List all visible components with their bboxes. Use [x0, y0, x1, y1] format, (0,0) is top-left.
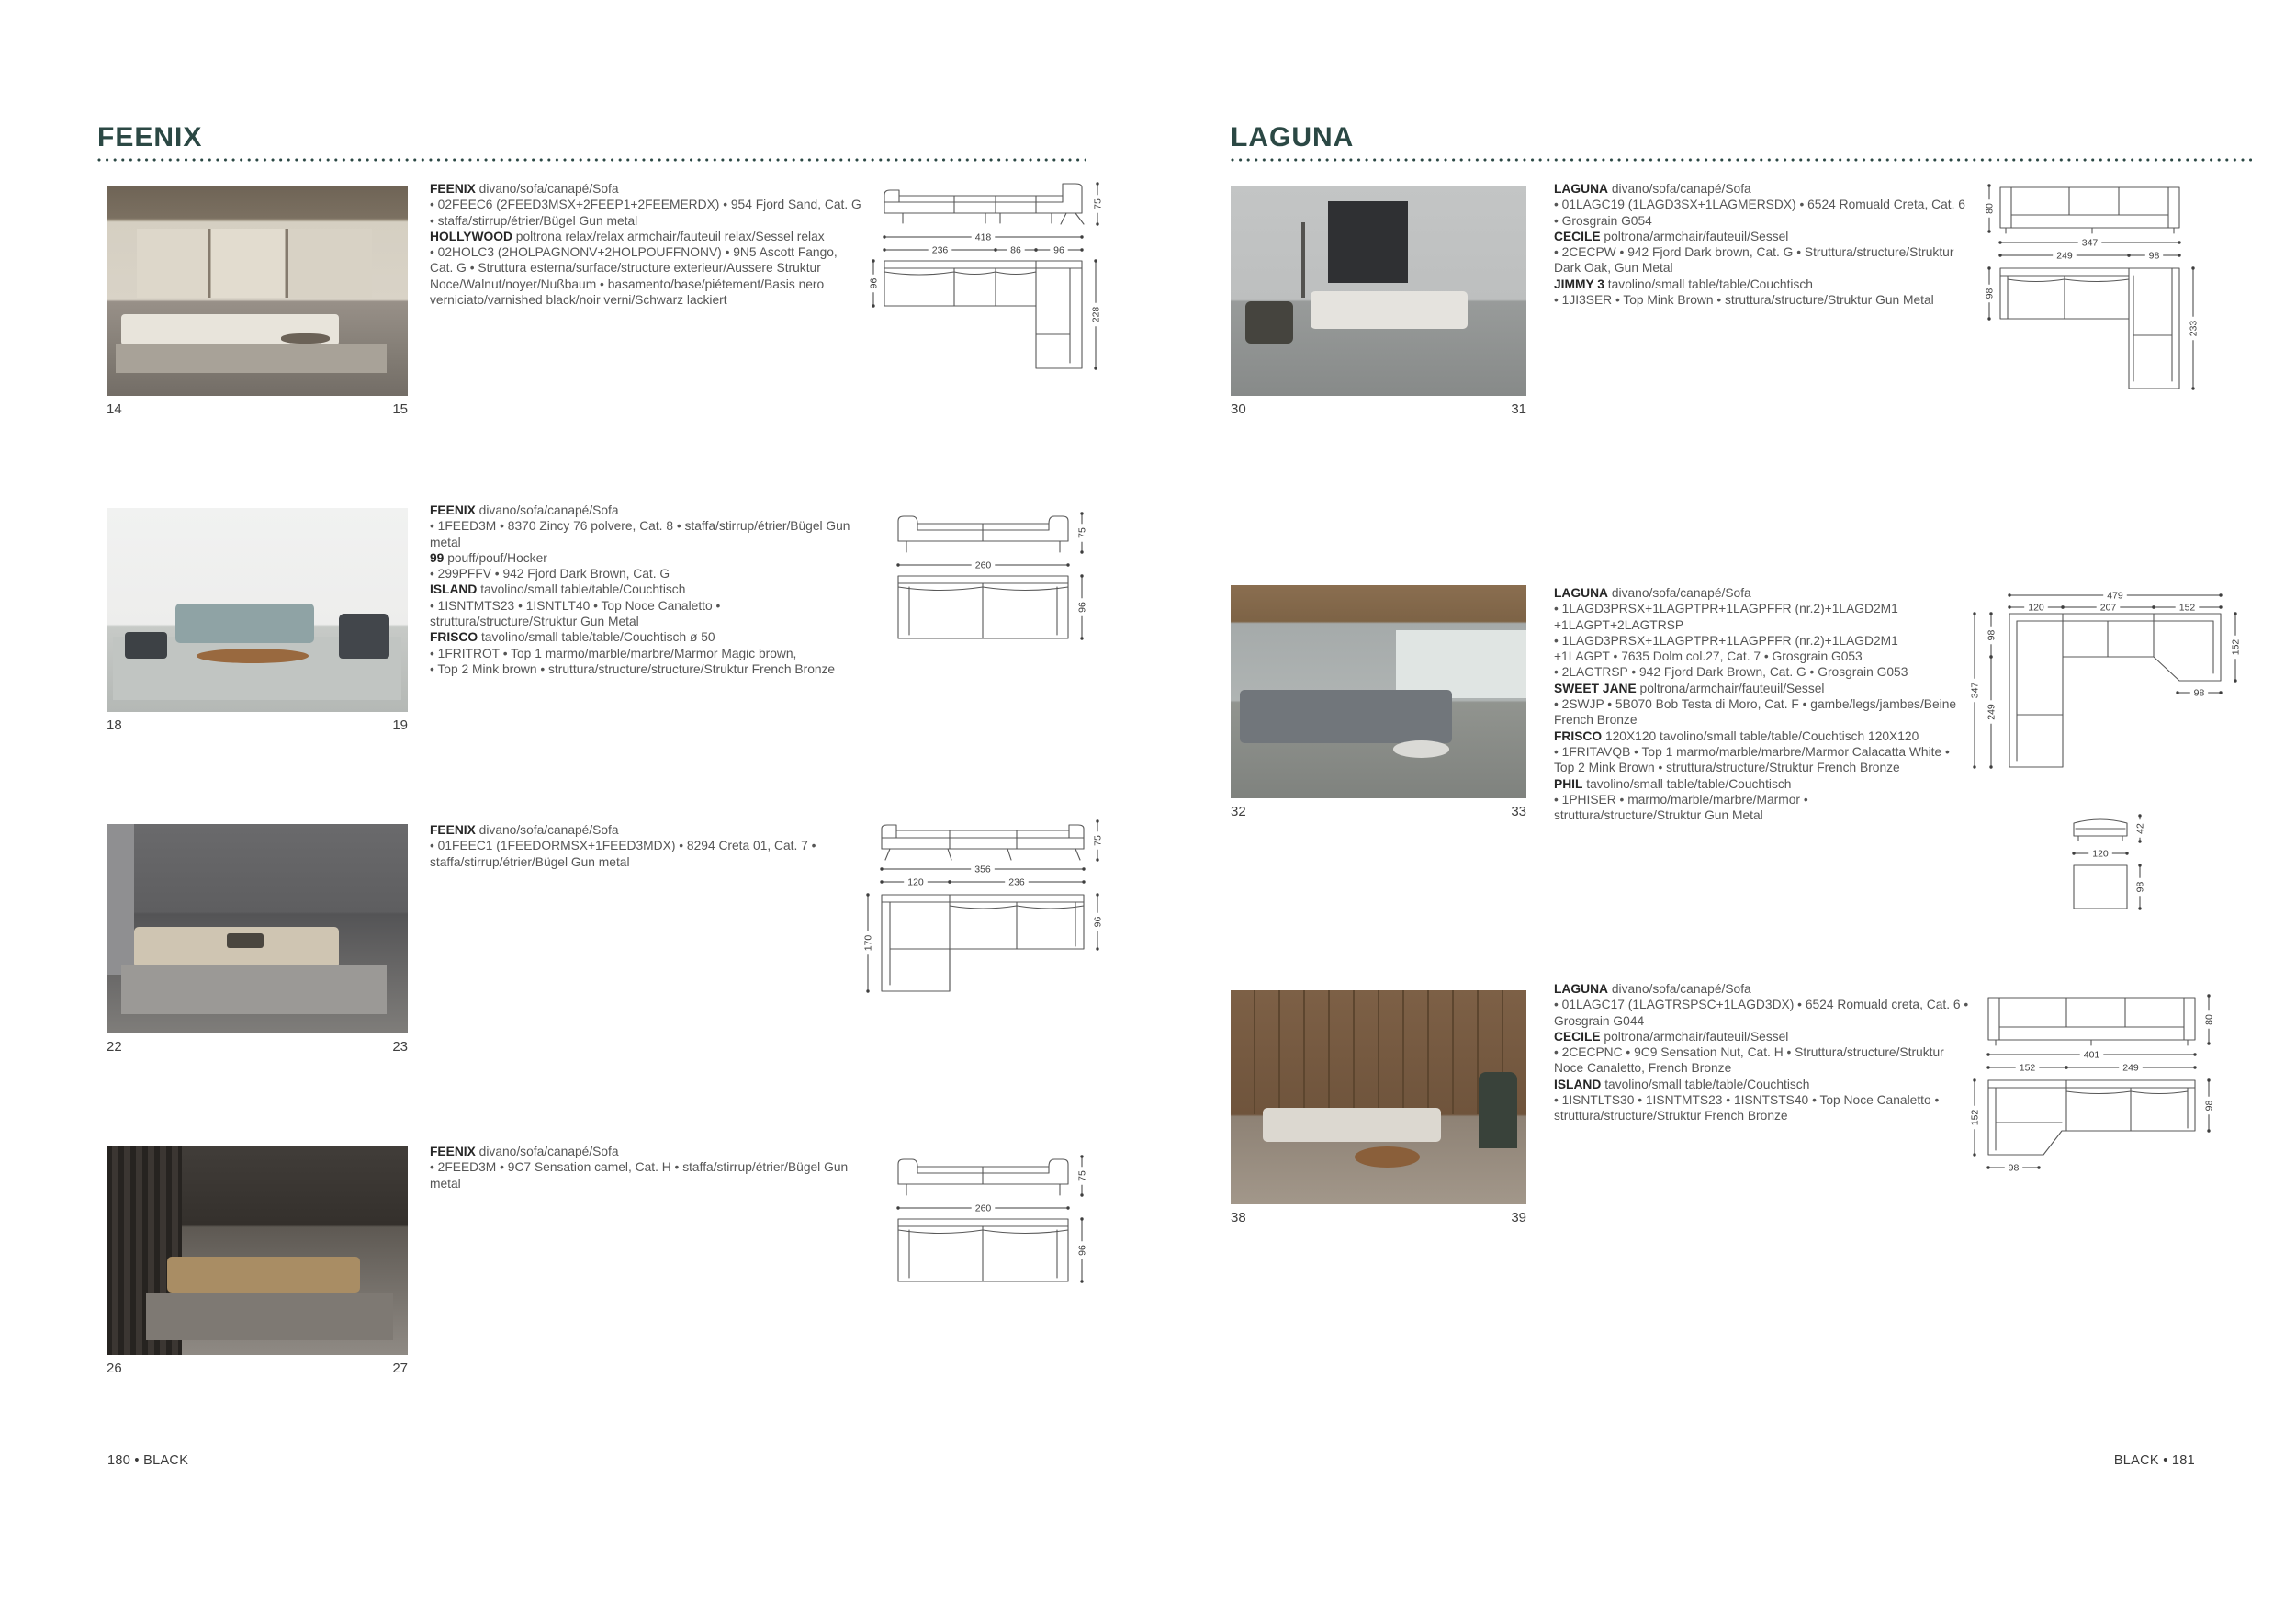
- product-name: FEENIX: [430, 1145, 476, 1158]
- photo-shape: [281, 333, 329, 344]
- product-spec-text: • 1FRITAVQB • Top 1 marmo/marble/marbre/…: [1554, 745, 1953, 774]
- photo-shape: [1328, 201, 1408, 283]
- dimension-segment: 249: [2065, 1062, 2196, 1073]
- dimension-total-width: 401: [1986, 1049, 2196, 1060]
- svg-text:75: 75: [1077, 527, 1088, 538]
- product-spec-text: • 1LAGD3PRSX+1LAGPTPR+1LAGPFFR (nr.2)+1L…: [1554, 602, 1898, 631]
- svg-text:228: 228: [1091, 307, 1102, 323]
- dimension-pouf-width: 120: [2072, 848, 2128, 859]
- svg-text:98: 98: [2149, 250, 2160, 261]
- dimension-segment: 120: [2008, 602, 2064, 613]
- product-spec-text: • 02HOLC3 (2HOLPAGNONV+2HOLPOUFFNONV) • …: [430, 245, 841, 307]
- svg-text:42: 42: [2135, 823, 2146, 834]
- svg-text:96: 96: [1077, 1245, 1088, 1256]
- photo-shape: [1311, 291, 1468, 329]
- product-name: HOLLYWOOD: [430, 230, 512, 243]
- svg-text:120: 120: [2028, 602, 2044, 613]
- product-spec-text: 120X120 tavolino/small table/table/Couch…: [1602, 729, 1919, 743]
- svg-text:236: 236: [1008, 876, 1025, 887]
- photo-caption: 1819: [107, 717, 408, 733]
- product-spec-text: • 299PFFV • 942 Fjord Dark Brown, Cat. G: [430, 567, 670, 581]
- photo-number: 30: [1231, 401, 1246, 417]
- svg-text:401: 401: [2084, 1049, 2100, 1060]
- svg-text:249: 249: [1986, 704, 1998, 720]
- product-spec-text: divano/sofa/canapé/Sofa: [476, 823, 619, 837]
- photo-caption: 2627: [107, 1360, 408, 1376]
- product-spec-text: • 1FRITROT • Top 1 marmo/marble/marbre/M…: [430, 647, 835, 676]
- photo-shape: [227, 933, 263, 948]
- svg-text:479: 479: [2107, 590, 2123, 601]
- product-photo: [107, 1146, 408, 1355]
- product-spec-text: • 1JI3SER • Top Mink Brown • struttura/s…: [1554, 293, 1934, 307]
- svg-text:96: 96: [869, 278, 880, 289]
- svg-text:80: 80: [1985, 203, 1996, 214]
- product-photo: [1231, 585, 1526, 798]
- product-name: PHIL: [1554, 777, 1582, 791]
- photo-caption: 1415: [107, 401, 408, 417]
- sofa-plan-art: [2009, 614, 2221, 767]
- page-title-feenix: FEENIX: [97, 122, 202, 153]
- photo-number: 18: [107, 717, 122, 733]
- svg-text:75: 75: [1093, 835, 1104, 846]
- svg-text:120: 120: [907, 876, 924, 887]
- product-spec-text: • 2SWJP • 5B070 Bob Testa di Moro, Cat. …: [1554, 697, 1960, 727]
- product-name: LAGUNA: [1554, 982, 1608, 996]
- product-spec-text: poltrona relax/relax armchair/fauteuil r…: [512, 230, 825, 243]
- svg-text:207: 207: [2100, 602, 2117, 613]
- dimension-height: 80: [2204, 994, 2215, 1044]
- product-spec-text: tavolino/small table/table/Couchtisch: [477, 582, 685, 596]
- svg-text:75: 75: [1077, 1170, 1088, 1181]
- svg-text:152: 152: [2231, 639, 2242, 656]
- photo-shape: [197, 649, 308, 663]
- photo-number: 33: [1511, 804, 1526, 819]
- photo-number: 22: [107, 1039, 122, 1055]
- product-name: ISLAND: [430, 582, 477, 596]
- photo-shape: [167, 1257, 360, 1293]
- product-name: FEENIX: [430, 823, 476, 837]
- dimension-segment: 249: [1998, 250, 2130, 261]
- dimension-drawing: 80 401 152 249 152 98 98: [1965, 985, 2291, 1174]
- photo-shape: [339, 614, 390, 659]
- sofa-elevation-art: [882, 825, 1084, 860]
- product-photo: [1231, 990, 1526, 1204]
- product-spec-text: poltrona/armchair/fauteuil/Sessel: [1601, 230, 1789, 243]
- dimension-total-width: 347: [1998, 237, 2180, 248]
- dimension-chaise: 170: [863, 893, 874, 992]
- sofa-elevation-art: [884, 184, 1084, 224]
- product-name: FRISCO: [430, 630, 478, 644]
- photo-shape: [175, 604, 314, 642]
- dimension-segment: 96: [1034, 244, 1083, 255]
- sofa-plan-art: [882, 895, 1084, 991]
- dimension-segment: 207: [2061, 602, 2155, 613]
- product-photo: [107, 186, 408, 396]
- dimension-pouf-height: 42: [2135, 814, 2146, 842]
- dimension-depth: 96: [1077, 1217, 1088, 1282]
- dimension-chaise: 233: [2189, 266, 2200, 389]
- svg-text:98: 98: [1986, 630, 1998, 641]
- photo-number: 23: [392, 1039, 408, 1055]
- page-title-laguna: LAGUNA: [1231, 122, 1354, 153]
- svg-text:75: 75: [1093, 198, 1104, 209]
- dimension-drawing: 75 260 96: [884, 1144, 1160, 1302]
- product-spec-text: • 01LAGC19 (1LAGD3SX+1LAGMERSDX) • 6524 …: [1554, 198, 1969, 227]
- svg-text:249: 249: [2056, 250, 2073, 261]
- product-spec-text: • 2FEED3M • 9C7 Sensation camel, Cat. H …: [430, 1160, 851, 1190]
- dimension-depth: 96: [1077, 574, 1088, 639]
- product-spec-text: poltrona/armchair/fauteuil/Sessel: [1601, 1030, 1789, 1044]
- dimension-height: 75: [1077, 1155, 1088, 1196]
- svg-text:98: 98: [2135, 882, 2146, 893]
- product-description: FEENIX divano/sofa/canapé/Sofa • 1FEED3M…: [430, 502, 861, 677]
- photo-shape: [125, 632, 167, 659]
- photo-shape: [1240, 690, 1453, 743]
- sofa-elevation-art: [898, 1159, 1068, 1195]
- product-photo: [107, 508, 408, 712]
- sofa-elevation-art: [2000, 187, 2179, 233]
- dimension-segment: 98: [1986, 612, 1998, 658]
- product-spec-text: poltrona/armchair/fauteuil/Sessel: [1637, 682, 1825, 695]
- dimension-total-width: 418: [883, 231, 1083, 243]
- product-spec-text: divano/sofa/canapé/Sofa: [1608, 586, 1751, 600]
- dimension-depth: 98: [1985, 266, 1996, 320]
- photo-shape: [1355, 1146, 1420, 1168]
- svg-text:96: 96: [1077, 602, 1088, 613]
- svg-text:80: 80: [2204, 1014, 2215, 1025]
- sofa-elevation-art: [898, 516, 1068, 552]
- dimension-segment: 98: [2127, 250, 2180, 261]
- svg-text:233: 233: [2189, 321, 2200, 337]
- dimension-drawing: 80 347 249 98 98 233: [1982, 175, 2296, 395]
- svg-text:152: 152: [1970, 1110, 1981, 1126]
- catalog-spread: FEENIX 1415 FEENIX divano/sofa/canapé/So…: [0, 0, 2296, 1603]
- photo-shape: [1301, 222, 1305, 298]
- sofa-plan-art: [2000, 268, 2179, 389]
- svg-text:260: 260: [975, 559, 992, 570]
- photo-caption: 3839: [1231, 1210, 1526, 1225]
- svg-text:418: 418: [975, 231, 992, 243]
- dimension-segment: 120: [880, 876, 951, 887]
- dimension-chaise: 152: [2231, 612, 2242, 682]
- dimension-chaise: 152: [1970, 1078, 1981, 1156]
- product-spec-text: divano/sofa/canapé/Sofa: [1608, 182, 1751, 196]
- photo-caption: 3233: [1231, 804, 1526, 819]
- product-spec-text: • 2CECPW • 942 Fjord Dark brown, Cat. G …: [1554, 245, 1957, 275]
- product-name: FRISCO: [1554, 729, 1602, 743]
- product-spec-text: divano/sofa/canapé/Sofa: [476, 182, 619, 196]
- product-description: LAGUNA divano/sofa/canapé/Sofa • 1LAGD3P…: [1554, 585, 1958, 823]
- svg-text:347: 347: [2082, 237, 2099, 248]
- product-spec-text: • 1FEED3M • 8370 Zincy 76 polvere, Cat. …: [430, 519, 853, 548]
- svg-text:260: 260: [975, 1202, 992, 1214]
- title-rule: [97, 158, 1086, 162]
- photo-shape: [1245, 301, 1293, 344]
- product-description: FEENIX divano/sofa/canapé/Sofa • 2FEED3M…: [430, 1144, 861, 1191]
- product-spec-text: • 2LAGTRSP • 942 Fjord Dark Brown, Cat. …: [1554, 665, 1908, 679]
- photo-caption: 3031: [1231, 401, 1526, 417]
- photo-number: 19: [392, 717, 408, 733]
- product-spec-text: divano/sofa/canapé/Sofa: [476, 503, 619, 517]
- photo-number: 26: [107, 1360, 122, 1376]
- dimension-width: 260: [896, 1202, 1069, 1214]
- photo-shape: [1396, 630, 1526, 698]
- dimension-width: 260: [896, 559, 1069, 570]
- product-spec-text: tavolino/small table/table/Couchtisch ø …: [478, 630, 715, 644]
- product-spec-text: • 1ISNTLTS30 • 1ISNTMTS23 • 1ISNTSTS40 •…: [1554, 1093, 1942, 1123]
- dimension-bottom: 98: [1986, 1162, 2040, 1173]
- dimension-drawing: 75 356 120 236 170 96: [859, 810, 1162, 999]
- dimension-inner: 98: [2176, 687, 2222, 698]
- product-spec-text: divano/sofa/canapé/Sofa: [476, 1145, 619, 1158]
- product-spec-text: tavolino/small table/table/Couchtisch: [1582, 777, 1791, 791]
- page-footer-left: 180 • BLACK: [107, 1453, 188, 1468]
- svg-text:347: 347: [1970, 683, 1981, 699]
- photo-caption: 2223: [107, 1039, 408, 1055]
- product-name: LAGUNA: [1554, 586, 1608, 600]
- product-spec-text: • 02FEEC6 (2FEED3MSX+2FEEP1+2FEEMERDX) •…: [430, 198, 865, 227]
- title-rule: [1231, 158, 2252, 162]
- svg-text:98: 98: [2194, 687, 2205, 698]
- dimension-chaise: 228: [1091, 259, 1102, 369]
- photo-shape: [1479, 1072, 1517, 1149]
- photo-shape: [137, 229, 372, 298]
- product-photo: [107, 824, 408, 1033]
- photo-shape: [146, 1293, 393, 1340]
- product-spec-text: • 1PHISER • marmo/marble/marbre/Marmor •…: [1554, 793, 1812, 822]
- dimension-segment: 152: [2152, 602, 2222, 613]
- dimension-total-width: 479: [2008, 590, 2222, 601]
- product-spec-text: tavolino/small table/table/Couchtisch: [1601, 1078, 1809, 1091]
- page-footer-right: BLACK • 181: [1965, 1453, 2195, 1468]
- photo-number: 27: [392, 1360, 408, 1376]
- photo-shape: [1393, 740, 1449, 758]
- product-name: JIMMY 3: [1554, 277, 1604, 291]
- photo-number: 14: [107, 401, 122, 417]
- product-description: LAGUNA divano/sofa/canapé/Sofa • 01LAGC1…: [1554, 181, 1972, 308]
- product-name: SWEET JANE: [1554, 682, 1637, 695]
- product-name: CECILE: [1554, 230, 1601, 243]
- product-description: FEENIX divano/sofa/canapé/Sofa • 01FEEC1…: [430, 822, 861, 870]
- svg-text:86: 86: [1010, 244, 1021, 255]
- svg-text:152: 152: [2020, 1062, 2036, 1073]
- dimension-total-width: 356: [880, 864, 1085, 875]
- pouf-art: [2074, 819, 2127, 909]
- dimension-segment: 236: [883, 244, 996, 255]
- dimension-total-depth: 347: [1970, 612, 1981, 768]
- dimension-height: 75: [1077, 512, 1088, 553]
- photo-shape: [116, 344, 387, 373]
- photo-shape: [107, 824, 134, 975]
- sofa-plan-art: [1988, 1080, 2195, 1155]
- svg-text:249: 249: [2122, 1062, 2139, 1073]
- product-photo: [1231, 186, 1526, 396]
- dimension-drawing: 479 120 207 152 347 98 249 152 98 42 120…: [1954, 586, 2285, 915]
- dimension-depth: 96: [869, 259, 880, 307]
- product-spec-text: • 1ISNTMTS23 • 1ISNTLT40 • Top Noce Cana…: [430, 599, 724, 628]
- product-name: ISLAND: [1554, 1078, 1601, 1091]
- sofa-plan-art: [884, 261, 1082, 368]
- product-spec-text: • 1LAGD3PRSX+1LAGPTPR+1LAGPFFR (nr.2)+1L…: [1554, 634, 1898, 663]
- svg-text:120: 120: [2092, 848, 2109, 859]
- product-spec-text: tavolino/small table/table/Couchtisch: [1604, 277, 1813, 291]
- product-spec-text: • 01FEEC1 (1FEEDORMSX+1FEED3MDX) • 8294 …: [430, 839, 819, 868]
- photo-number: 38: [1231, 1210, 1246, 1225]
- product-name: FEENIX: [430, 182, 476, 196]
- svg-text:152: 152: [2179, 602, 2196, 613]
- product-name: FEENIX: [430, 503, 476, 517]
- product-description: FEENIX divano/sofa/canapé/Sofa • 02FEEC6…: [430, 181, 861, 308]
- svg-text:98: 98: [1985, 288, 1996, 299]
- photo-number: 31: [1511, 401, 1526, 417]
- svg-text:96: 96: [1093, 917, 1104, 928]
- product-description: LAGUNA divano/sofa/canapé/Sofa • 01LAGC1…: [1554, 981, 1972, 1124]
- dimension-height: 75: [1093, 819, 1104, 861]
- photo-number: 15: [392, 401, 408, 417]
- svg-text:236: 236: [932, 244, 949, 255]
- svg-text:96: 96: [1053, 244, 1064, 255]
- dimension-segment: 249: [1986, 655, 1998, 768]
- product-name: 99: [430, 551, 444, 565]
- dimension-segment: 236: [948, 876, 1085, 887]
- dimension-segment: 152: [1986, 1062, 2067, 1073]
- dimension-height: 80: [1985, 184, 1996, 232]
- sofa-elevation-art: [1988, 998, 2195, 1045]
- dimension-segment: 86: [994, 244, 1037, 255]
- svg-text:98: 98: [2204, 1101, 2215, 1112]
- sofa-plan-art: [898, 576, 1068, 638]
- photo-number: 39: [1511, 1210, 1526, 1225]
- dimension-height: 75: [1093, 182, 1104, 225]
- dimension-drawing: 75 418 236 86 96 96 228: [866, 175, 1160, 415]
- product-name: CECILE: [1554, 1030, 1601, 1044]
- product-name: LAGUNA: [1554, 182, 1608, 196]
- product-spec-text: • 2CECPNC • 9C9 Sensation Nut, Cat. H • …: [1554, 1045, 1948, 1075]
- product-spec-text: • 01LAGC17 (1LAGTRSPSC+1LAGD3DX) • 6524 …: [1554, 998, 1972, 1027]
- photo-shape: [121, 965, 387, 1015]
- dimension-depth: 98: [2204, 1078, 2215, 1132]
- dimension-depth: 96: [1093, 893, 1104, 950]
- svg-text:98: 98: [2009, 1162, 2020, 1173]
- dimension-drawing: 75 260 96: [884, 501, 1160, 659]
- product-spec-text: divano/sofa/canapé/Sofa: [1608, 982, 1751, 996]
- dimension-pouf-depth: 98: [2135, 864, 2146, 909]
- photo-number: 32: [1231, 804, 1246, 819]
- sofa-plan-art: [898, 1219, 1068, 1281]
- svg-text:170: 170: [863, 935, 874, 952]
- photo-shape: [1263, 1108, 1440, 1142]
- svg-text:356: 356: [974, 864, 991, 875]
- product-spec-text: pouff/pouf/Hocker: [444, 551, 547, 565]
